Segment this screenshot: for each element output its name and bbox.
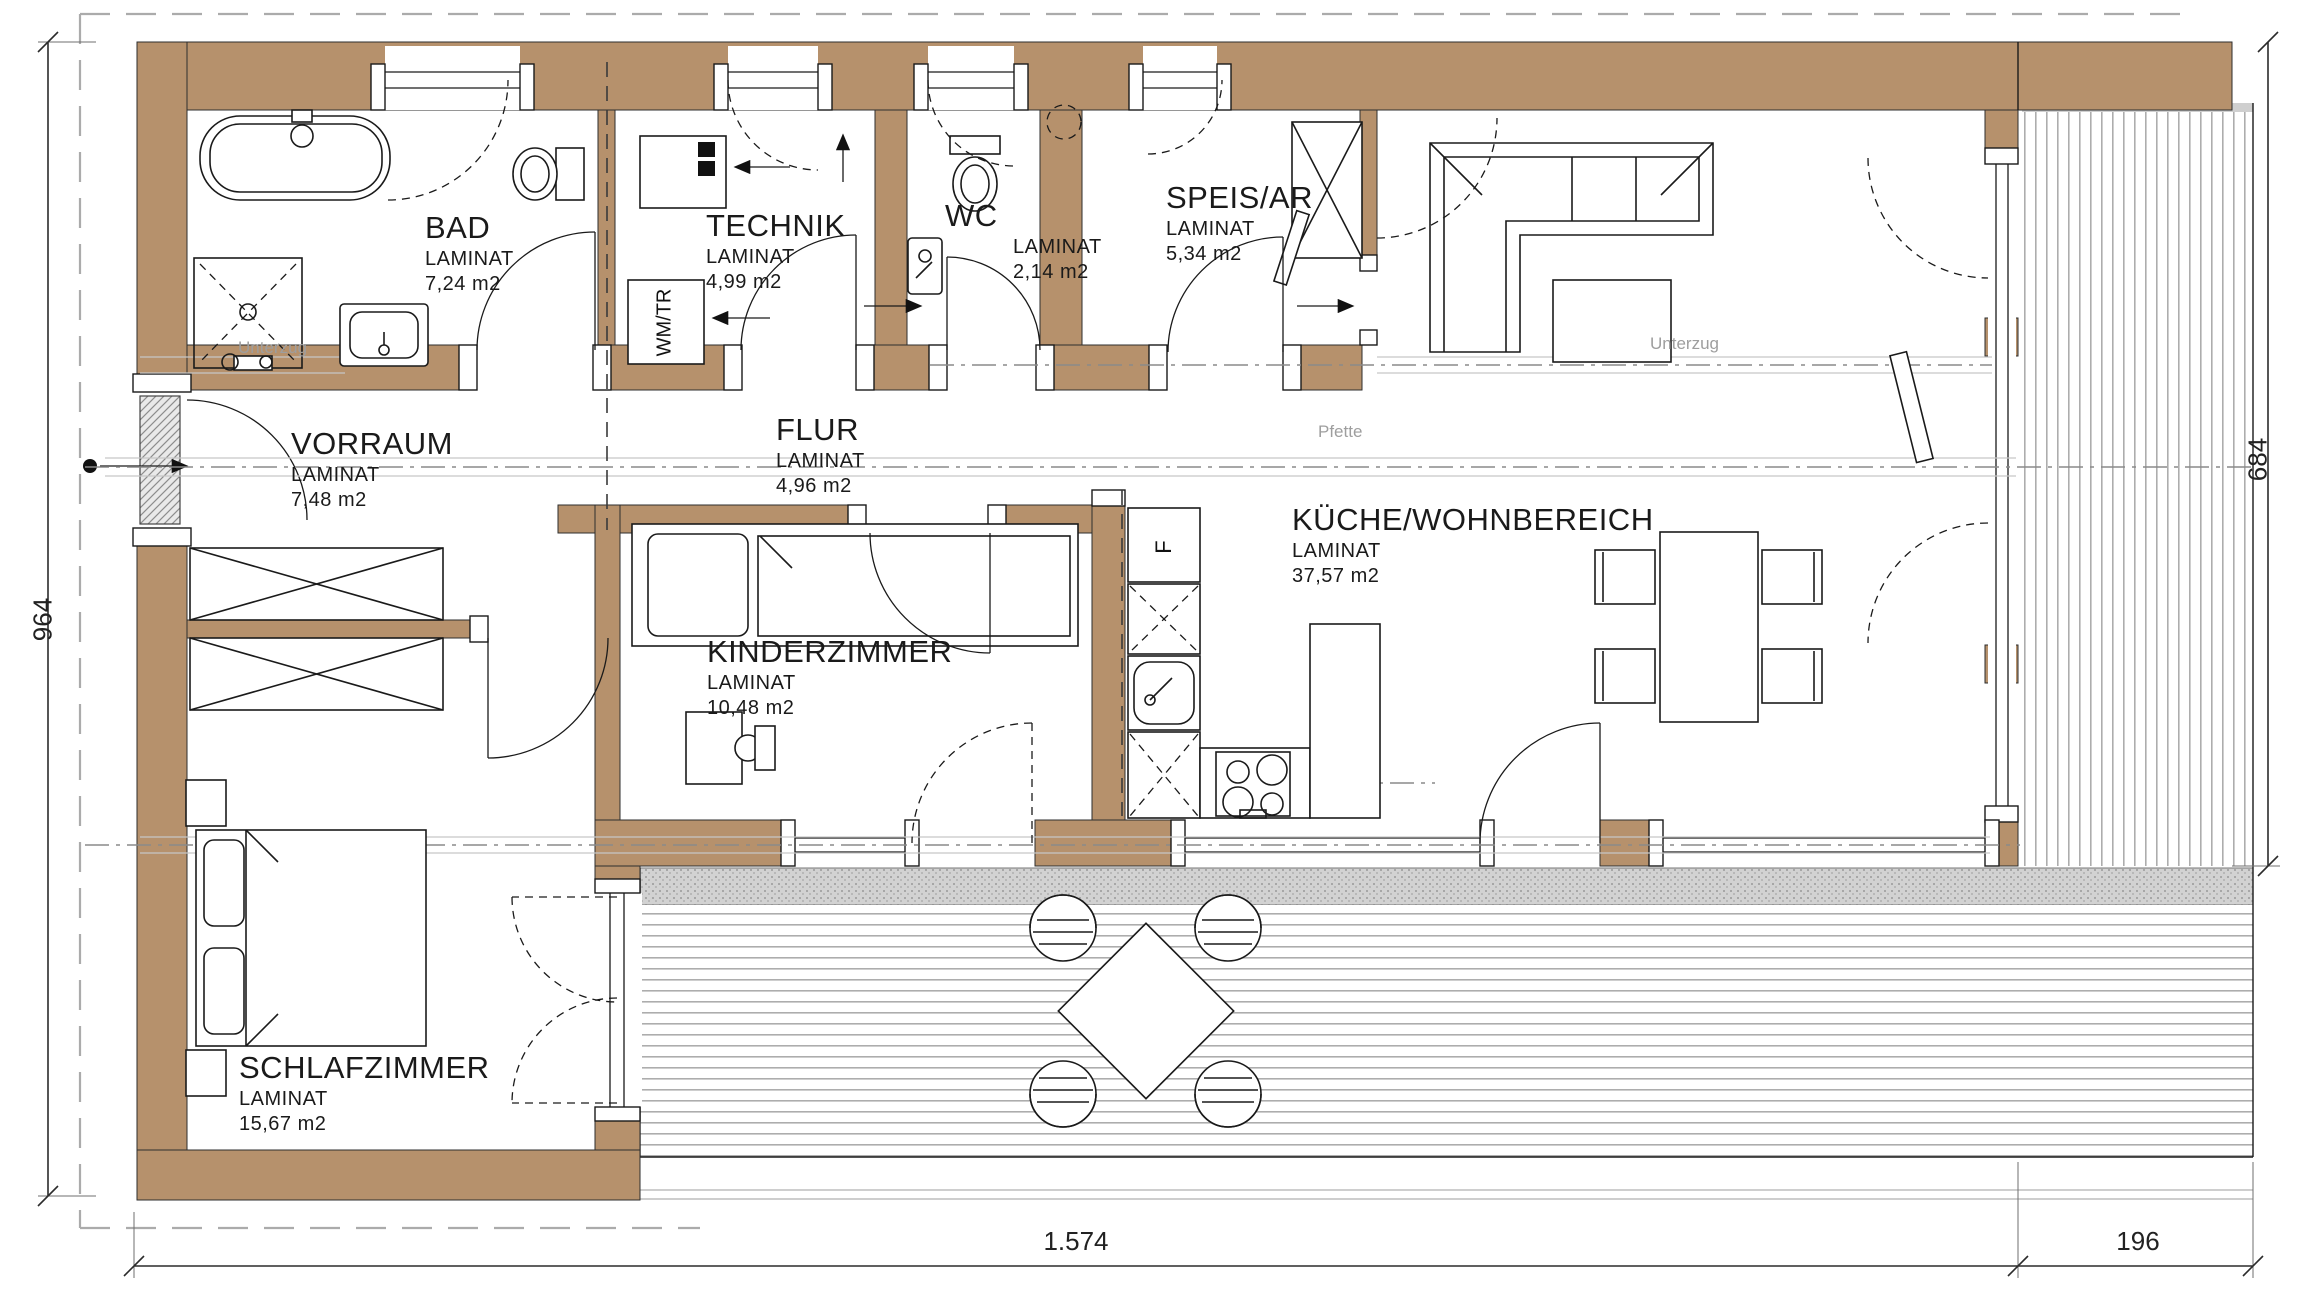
window-bad (371, 46, 534, 110)
room-label-speis: SPEIS/AR LAMINAT 5,34 m2 (1166, 182, 1313, 265)
room-label-schlafzimmer: SCHLAFZIMMER LAMINAT 15,67 m2 (239, 1052, 490, 1135)
pfette-label: Pfette (1318, 422, 1362, 442)
room-name: KINDERZIMMER (707, 636, 952, 669)
room-name: FLUR (776, 414, 865, 447)
stove (1216, 752, 1290, 818)
entrance-door (83, 374, 307, 546)
window-kueche-south (1171, 820, 1494, 866)
room-name: VORRAUM (291, 428, 453, 461)
room-label-bad: BAD LAMINAT 7,24 m2 (425, 212, 514, 295)
room-floor: LAMINAT (1166, 219, 1313, 240)
dimension-left-depth: 964 (28, 590, 59, 650)
window-speis (1129, 46, 1231, 110)
window-kinderzimmer-south (781, 820, 919, 866)
unterzug-label-right: Unterzug (1650, 334, 1719, 354)
room-name: SCHLAFZIMMER (239, 1052, 490, 1085)
room-floor: LAMINAT (776, 451, 865, 472)
terrace-chair (1195, 895, 1261, 961)
room-floor: LAMINAT (707, 673, 952, 694)
room-area: 4,99 m2 (706, 272, 846, 293)
room-floor: LAMINAT (1013, 237, 1102, 258)
bed-kinderzimmer (632, 524, 1078, 646)
boiler-unit (640, 136, 726, 208)
dimension-bottom-width: 1.574 (1016, 1226, 1136, 1257)
room-label-kueche-wohnbereich: KÜCHE/WOHNBEREICH LAMINAT 37,57 m2 (1292, 504, 1654, 587)
room-label-wc: WC LAMINAT 2,14 m2 (945, 200, 1102, 283)
room-area: 37,57 m2 (1292, 566, 1654, 587)
dining-table (1660, 532, 1758, 722)
room-floor: LAMINAT (706, 247, 846, 268)
terrace-right (2022, 103, 2253, 866)
unterzug-label-left: Unterzug (238, 338, 307, 358)
washer-dryer-label: WM/TR (654, 273, 677, 373)
room-name: WC (945, 200, 1102, 233)
entrance-marker-dot (83, 459, 97, 473)
wardrobe-bottom (190, 638, 443, 710)
room-label-vorraum: VORRAUM LAMINAT 7,48 m2 (291, 428, 453, 511)
room-name: TECHNIK (706, 210, 846, 243)
room-area: 4,96 m2 (776, 476, 865, 497)
room-area: 10,48 m2 (707, 698, 952, 719)
dimension-bottom-terrace: 196 (2078, 1226, 2198, 1257)
room-label-technik: TECHNIK LAMINAT 4,99 m2 (706, 210, 846, 293)
wardrobe-top (190, 548, 443, 620)
room-area: 15,67 m2 (239, 1114, 490, 1135)
room-name: BAD (425, 212, 514, 245)
room-name: KÜCHE/WOHNBEREICH (1292, 504, 1654, 537)
tv-screen (1890, 352, 1933, 463)
washbasin-bad (340, 304, 428, 366)
window-technik (714, 46, 832, 110)
bathtub (200, 110, 390, 200)
bed-schlafzimmer (196, 830, 426, 1046)
room-floor: LAMINAT (291, 465, 453, 486)
terrace-chair (1030, 895, 1096, 961)
room-area: 5,34 m2 (1166, 244, 1313, 265)
terrace-chair (1195, 1061, 1261, 1127)
gutter-lines (445, 1190, 2253, 1199)
terrace-chair (1030, 1061, 1096, 1127)
room-area: 2,14 m2 (1013, 262, 1102, 283)
washbasin-wc (908, 238, 942, 294)
floorplan-canvas: BAD LAMINAT 7,24 m2 TECHNIK LAMINAT 4,99… (0, 0, 2316, 1310)
dimension-right-depth: 684 (2243, 430, 2274, 490)
room-area: 7,24 m2 (425, 274, 514, 295)
room-area: 7,48 m2 (291, 490, 453, 511)
room-label-kinderzimmer: KINDERZIMMER LAMINAT 10,48 m2 (707, 636, 952, 719)
desk-kinderzimmer (686, 712, 775, 784)
toilet-bad (513, 148, 584, 200)
room-floor: LAMINAT (425, 249, 514, 270)
window-wall-east (1985, 148, 2018, 822)
french-door-schlafzimmer (512, 879, 642, 1121)
fridge-label: F (1151, 521, 1177, 573)
room-floor: LAMINAT (239, 1089, 490, 1110)
window-wohnbereich-south (1649, 820, 1999, 866)
room-floor: LAMINAT (1292, 541, 1654, 562)
room-label-flur: FLUR LAMINAT 4,96 m2 (776, 414, 865, 497)
room-name: SPEIS/AR (1166, 182, 1313, 215)
